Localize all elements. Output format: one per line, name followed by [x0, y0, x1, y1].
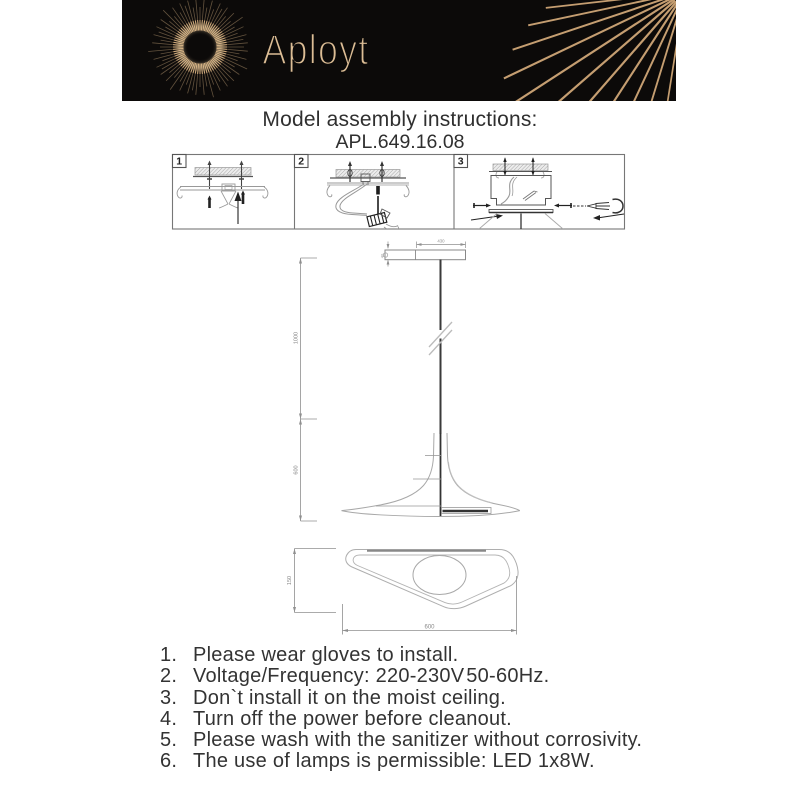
svg-text:1: 1: [176, 156, 182, 168]
svg-text:600: 600: [294, 465, 300, 474]
svg-text:1000: 1000: [294, 332, 300, 344]
svg-text:150: 150: [287, 576, 293, 585]
svg-text:600: 600: [424, 625, 435, 631]
svg-text:40: 40: [380, 253, 385, 258]
svg-text:430: 430: [437, 239, 445, 244]
svg-text:2: 2: [298, 156, 304, 168]
svg-text:3: 3: [458, 156, 464, 168]
